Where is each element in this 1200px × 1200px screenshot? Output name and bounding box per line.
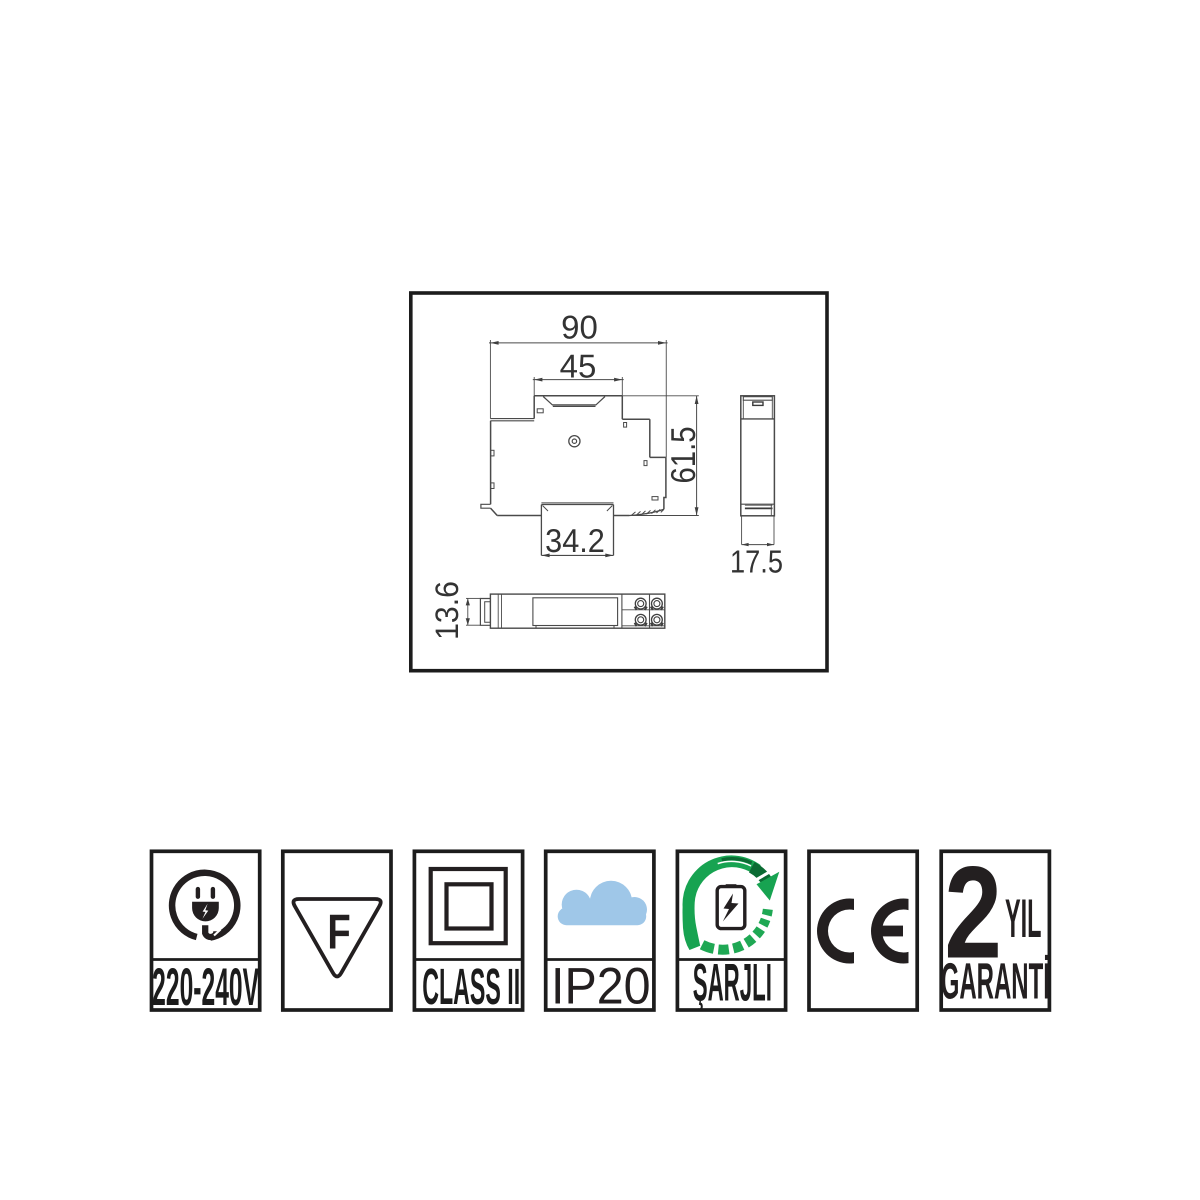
svg-text:ŞARJLI: ŞARJLI bbox=[693, 954, 772, 1013]
svg-text:220-240V: 220-240V bbox=[152, 958, 259, 1017]
svg-text:90: 90 bbox=[561, 309, 598, 346]
svg-text:13.6: 13.6 bbox=[429, 581, 465, 640]
svg-text:CLASS II: CLASS II bbox=[422, 958, 520, 1015]
svg-text:IP20: IP20 bbox=[551, 957, 651, 1015]
svg-text:17.5: 17.5 bbox=[730, 544, 783, 580]
svg-text:34.2: 34.2 bbox=[545, 522, 605, 559]
svg-text:61.5: 61.5 bbox=[665, 426, 703, 483]
svg-text:45: 45 bbox=[560, 348, 597, 385]
svg-text:YIL: YIL bbox=[1005, 888, 1041, 949]
svg-text:F: F bbox=[327, 906, 350, 960]
svg-text:GARANTİ: GARANTİ bbox=[941, 953, 1050, 1010]
